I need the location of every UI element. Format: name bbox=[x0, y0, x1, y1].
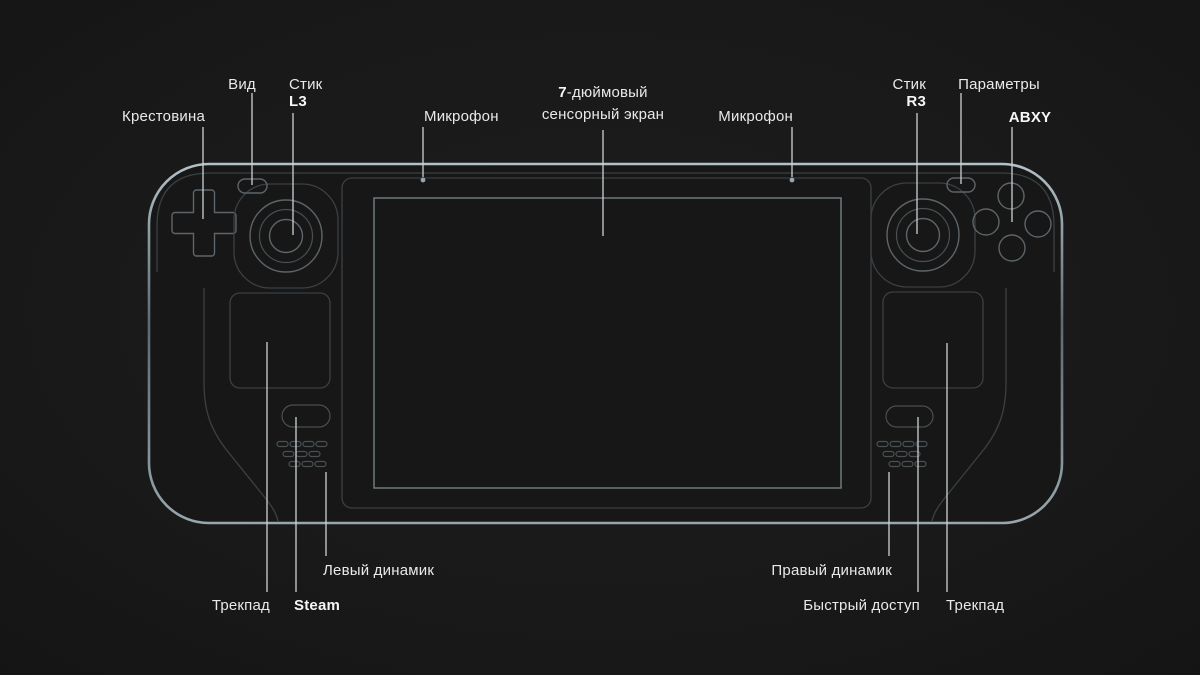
label-options-button: Параметры bbox=[958, 76, 1040, 93]
label-mic-right: Микрофон bbox=[718, 108, 793, 125]
label-touchscreen-inch: -дюймовый bbox=[567, 84, 648, 101]
label-quick-access: Быстрый доступ bbox=[803, 597, 920, 614]
steam-deck-callout-diagram: Крестовина Вид Стик L3 Микрофон 7-дюймов… bbox=[0, 0, 1200, 675]
label-left-stick-l3: L3 bbox=[289, 93, 307, 110]
label-abxy: ABXY bbox=[1009, 109, 1051, 126]
label-steam-button: Steam bbox=[294, 597, 340, 614]
label-touchscreen-line2: сенсорный экран bbox=[542, 104, 664, 126]
label-left-speaker: Левый динамик bbox=[323, 562, 434, 579]
label-left-trackpad: Трекпад bbox=[212, 597, 270, 614]
microphone-right-dot bbox=[790, 178, 795, 183]
label-right-trackpad: Трекпад bbox=[946, 597, 1004, 614]
label-mic-left: Микрофон bbox=[424, 108, 499, 125]
label-left-stick: Стик L3 bbox=[289, 76, 322, 110]
label-right-stick-word: Стик bbox=[893, 76, 926, 93]
label-dpad: Крестовина bbox=[122, 108, 205, 125]
device-body-outline bbox=[149, 164, 1062, 523]
microphone-left-dot bbox=[421, 178, 426, 183]
label-abxy-text: ABXY bbox=[1009, 109, 1051, 126]
label-touchscreen: 7-дюймовый сенсорный экран bbox=[542, 82, 664, 126]
label-right-speaker: Правый динамик bbox=[771, 562, 892, 579]
label-touchscreen-line1: 7-дюймовый bbox=[542, 82, 664, 104]
label-right-stick: Стик R3 bbox=[893, 76, 926, 110]
label-view-button: Вид bbox=[228, 76, 256, 93]
label-right-stick-r3: R3 bbox=[906, 93, 926, 110]
label-steam-text: Steam bbox=[294, 597, 340, 614]
label-left-stick-word: Стик bbox=[289, 76, 322, 93]
label-touchscreen-7: 7 bbox=[558, 84, 567, 101]
